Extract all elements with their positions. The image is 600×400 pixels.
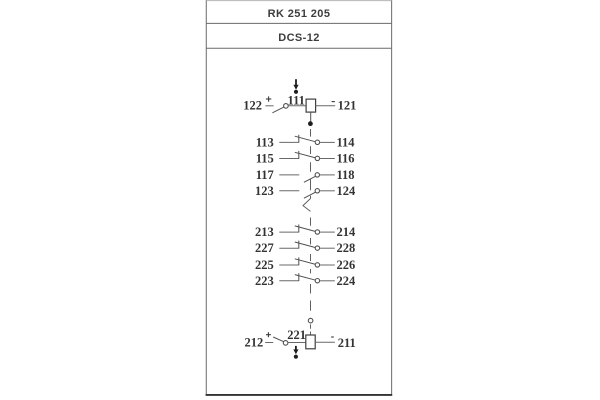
svg-text:122: 122 — [243, 99, 262, 113]
svg-text:115: 115 — [256, 152, 274, 166]
svg-text:118: 118 — [337, 168, 355, 182]
svg-text:226: 226 — [337, 258, 356, 272]
svg-text:113: 113 — [256, 135, 274, 149]
svg-text:RK 251 205: RK 251 205 — [268, 8, 331, 20]
svg-text:111: 111 — [288, 93, 305, 107]
svg-text:224: 224 — [337, 274, 357, 288]
svg-text:124: 124 — [337, 184, 357, 198]
svg-text:227: 227 — [255, 241, 274, 255]
svg-text:228: 228 — [337, 241, 356, 255]
svg-text:117: 117 — [256, 168, 274, 182]
svg-text:225: 225 — [255, 258, 274, 272]
svg-text:121: 121 — [338, 98, 357, 112]
svg-text:213: 213 — [255, 225, 274, 239]
svg-text:123: 123 — [255, 184, 274, 198]
svg-text:211: 211 — [338, 336, 356, 350]
svg-text:116: 116 — [337, 152, 355, 166]
svg-text:DCS-12: DCS-12 — [278, 32, 320, 44]
svg-text:114: 114 — [337, 135, 356, 149]
svg-text:214: 214 — [337, 225, 357, 239]
svg-text:212: 212 — [245, 336, 264, 350]
svg-text:223: 223 — [255, 274, 274, 288]
svg-text:221: 221 — [287, 328, 306, 342]
